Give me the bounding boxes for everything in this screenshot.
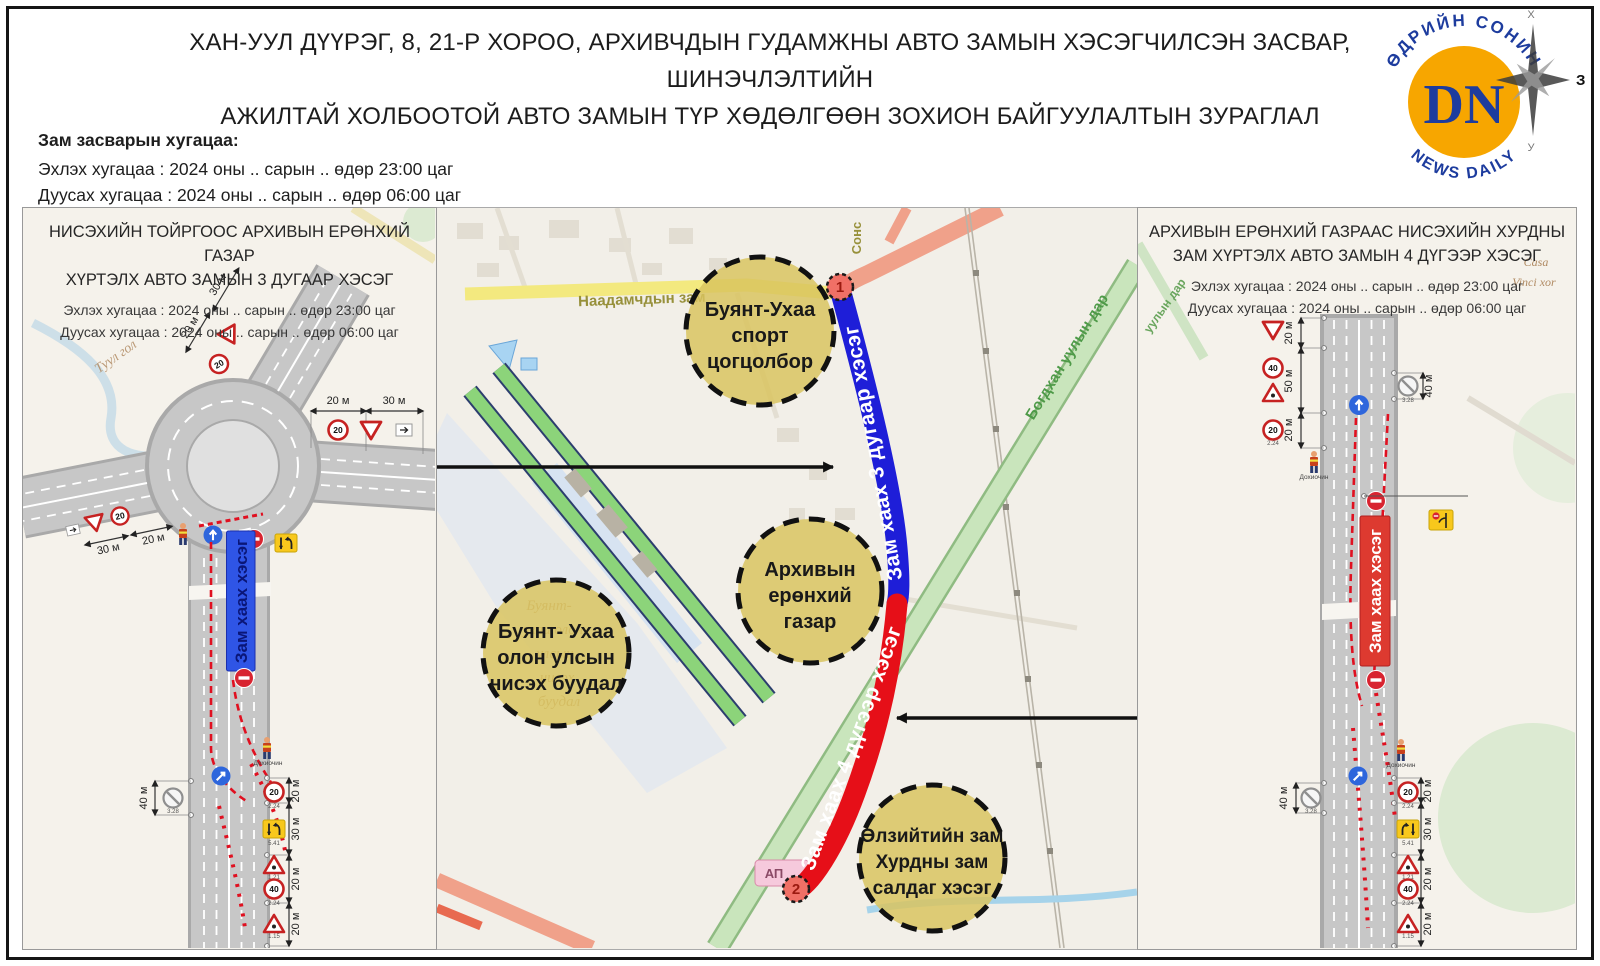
worker-icon [1397, 739, 1405, 761]
poi-sport-complex: Буянт-Ухаа спорт цогцолбор [686, 257, 834, 405]
svg-text:1: 1 [836, 279, 844, 296]
direction-plate-icon [66, 524, 81, 536]
right-panel-end: Дуусах хугацаа : 2024 оны .. сарын .. өд… [1138, 297, 1576, 319]
svg-text:Хурдны зам: Хурдны зам [876, 852, 989, 873]
svg-text:2: 2 [792, 881, 800, 898]
repair-end: Дуусах хугацаа : 2024 оны .. сарын .. өд… [38, 182, 461, 208]
svg-text:АП: АП [765, 866, 784, 881]
svg-text:20 м: 20 м [141, 531, 166, 547]
svg-text:50 м: 50 м [1283, 370, 1295, 393]
lane-closed-sign-icon [1429, 510, 1453, 530]
svg-text:20: 20 [1268, 425, 1278, 435]
roadworks-warning-icon [1398, 856, 1418, 873]
lane-shift-sign-icon [275, 534, 297, 552]
no-entry-sign-icon [1367, 671, 1386, 690]
svg-text:20 м: 20 м [290, 913, 302, 936]
poi-archive: Архивын ерөнхий газар [738, 519, 882, 663]
svg-text:20 м: 20 м [1422, 868, 1434, 891]
svg-text:20 м: 20 м [1422, 780, 1434, 803]
svg-text:20 м: 20 м [1283, 322, 1295, 345]
poi-junction: Өлзийтийн зам Хурдны зам салдаг хэсэг [859, 785, 1005, 931]
measure-left-bottom-40: 40 м 3.28 [1278, 781, 1326, 816]
left-panel-header: НИСЭХИЙН ТОЙРГООС АРХИВЫН ЕРӨНХИЙ ГАЗАР … [23, 220, 436, 343]
roundabout-island [187, 420, 279, 512]
page-title-line1: ХАН-УУЛ ДҮҮРЭГ, 8, 21-Р ХОРОО, АРХИВЧДЫН… [150, 24, 1390, 98]
no-stopping-sign-icon [1399, 377, 1418, 396]
compass-east-label: З [1576, 72, 1585, 89]
bg-green-area [1438, 723, 1575, 913]
right-panel-start: Эхлэх хугацаа : 2024 оны .. сарын .. өдө… [1138, 275, 1576, 297]
left-panel-end: Дуусах хугацаа : 2024 оны .. сарын .. өд… [23, 321, 436, 343]
svg-text:40: 40 [1403, 884, 1413, 894]
svg-text:олон улсын: олон улсын [497, 647, 615, 669]
no-entry-sign-icon [235, 669, 254, 688]
right-panel-title-line1: АРХИВЫН ЕРӨНХИЙ ГАЗРААС НИСЭХИЙН ХУРДНЫ [1138, 220, 1576, 244]
svg-text:30 м: 30 м [96, 541, 121, 557]
measure-left-column: 20 м 50 м 20 м 40 20 2.24 [1263, 316, 1326, 451]
compass-north-label: Х [1527, 9, 1535, 21]
repair-start: Эхлэх хугацаа : 2024 оны .. сарын .. өдө… [38, 156, 461, 182]
no-stopping-sign-icon [1302, 789, 1321, 808]
logo-monogram: DN [1424, 74, 1505, 136]
svg-text:2.24: 2.24 [268, 901, 280, 907]
svg-text:30 м: 30 м [290, 818, 302, 841]
road-narrows-warning-icon [1398, 915, 1418, 932]
svg-text:20 м: 20 м [290, 780, 302, 803]
svg-text:2.24: 2.24 [1402, 804, 1414, 810]
svg-text:5.41: 5.41 [268, 841, 280, 847]
repair-time-heading: Зам засварын хугацаа: [38, 127, 461, 153]
repair-time-block: Зам засварын хугацаа: Эхлэх хугацаа : 20… [38, 127, 461, 208]
svg-text:2.24: 2.24 [1267, 441, 1279, 447]
right-panel-section4: АРХИВЫН ЕРӨНХИЙ ГАЗРААС НИСЭХИЙН ХУРДНЫ … [1137, 207, 1577, 950]
svg-text:1.15: 1.15 [1402, 934, 1414, 940]
dn-logo-svg: DN ӨДРИЙН СОНИН NEWS DAILY Х У З [1380, 2, 1590, 202]
svg-text:20 м: 20 м [1283, 419, 1295, 442]
svg-text:20 м: 20 м [1422, 913, 1434, 936]
right-panel-title-line2: ЗАМ ХҮРТЭЛХ АВТО ЗАМЫН 4 ДҮГЭЭР ХЭСЭГ [1138, 244, 1576, 268]
right-panel-header: АРХИВЫН ЕРӨНХИЙ ГАЗРААС НИСЭХИЙН ХУРДНЫ … [1138, 220, 1576, 319]
center-map-svg: Наадамчдын зам Сонс Богдхан уулы [437, 208, 1137, 948]
oneway-sign-icon [204, 526, 223, 545]
bg-green-area [1513, 393, 1575, 503]
measure-right-40: 40 м 3.28 [1392, 371, 1435, 404]
svg-text:30 м: 30 м [1422, 818, 1434, 841]
svg-text:20: 20 [1403, 787, 1413, 797]
measure-left-40: 40 м 3.28 [138, 779, 193, 818]
sons-road-label: Сонс [849, 222, 864, 254]
svg-text:Өлзийтийн зам: Өлзийтийн зам [861, 826, 1004, 847]
svg-text:Буянт- Ухаа: Буянт- Ухаа [498, 621, 615, 643]
svg-text:20 м: 20 м [290, 868, 302, 891]
pink-road-stub [889, 208, 907, 242]
bogdkhan-road-label: Богдхан уулын дар [1022, 291, 1112, 423]
svg-text:30 м: 30 м [383, 395, 406, 407]
svg-text:20 м: 20 м [327, 395, 350, 407]
center-map: Наадамчдын зам Сонс Богдхан уулы [437, 207, 1137, 950]
roadworks-warning-icon [1263, 384, 1283, 401]
yield-sign-icon [1263, 322, 1283, 339]
svg-text:5.41: 5.41 [1402, 841, 1414, 847]
compass-south-label: У [1528, 142, 1536, 154]
yield-sign-icon [361, 422, 381, 439]
lane-shift-sign-icon [1397, 820, 1419, 838]
svg-text:40 м: 40 м [138, 787, 150, 810]
poi-airport: Буянт- Ухаа олон улсын нисэх буудал [483, 580, 629, 726]
svg-text:Буянт-Ухаа: Буянт-Ухаа [705, 299, 816, 321]
svg-text:Архивын: Архивын [764, 559, 855, 581]
svg-text:нисэх буудал: нисэх буудал [489, 673, 622, 695]
left-panel-title-line1: НИСЭХИЙН ТОЙРГООС АРХИВЫН ЕРӨНХИЙ ГАЗАР [23, 220, 436, 268]
svg-text:40 м: 40 м [1278, 787, 1290, 810]
page-title: ХАН-УУЛ ДҮҮРЭГ, 8, 21-Р ХОРОО, АРХИВЧДЫН… [150, 24, 1390, 135]
dn-logo: DN ӨДРИЙН СОНИН NEWS DAILY Х У З [1380, 2, 1590, 202]
lane-shift-sign-icon [263, 820, 285, 838]
keep-right-sign-icon [1349, 767, 1368, 786]
pond-shape [521, 358, 537, 370]
keep-right-sign-icon [212, 767, 231, 786]
closure-label-right: Зам хаах хэсэг [1366, 529, 1385, 653]
worker-icon [179, 523, 187, 545]
flagman-label: Дохиочин [254, 760, 283, 767]
svg-text:спорт: спорт [731, 325, 788, 347]
svg-text:ерөнхий: ерөнхий [768, 585, 851, 607]
marker-1: 1 [827, 274, 853, 300]
flagman-label: Дохиочин [1300, 474, 1329, 481]
highway-ramp [437, 908, 481, 926]
naadam-road-label: Наадамчдын зам [578, 289, 706, 310]
airport-area [437, 368, 769, 793]
svg-text:20: 20 [269, 787, 279, 797]
traffic-plan-poster: ХАН-УУЛ ДҮҮРЭГ, 8, 21-Р ХОРОО, АРХИВЧДЫН… [0, 0, 1600, 966]
svg-text:3.28: 3.28 [167, 809, 179, 815]
svg-text:2.24: 2.24 [268, 804, 280, 810]
no-entry-sign-icon [1367, 492, 1386, 511]
marker-2: 2 [783, 876, 809, 902]
no-stopping-sign-icon [164, 789, 183, 808]
svg-text:цогцолбор: цогцолбор [707, 351, 813, 373]
right-road-diagram: уулын дар Casa Vinci xor [1138, 208, 1575, 948]
left-panel-title-line2: ХҮРТЭЛХ АВТО ЗАМЫН 3 ДУГААР ХЭСЭГ [23, 268, 436, 292]
svg-text:3.28: 3.28 [1402, 398, 1414, 404]
svg-text:2.24: 2.24 [1402, 901, 1414, 907]
direction-plate-icon [396, 424, 412, 436]
svg-text:40: 40 [269, 884, 279, 894]
svg-text:салдаг хэсэг: салдаг хэсэг [873, 878, 992, 899]
svg-text:40 м: 40 м [1423, 375, 1435, 398]
svg-text:3.28: 3.28 [1305, 809, 1317, 815]
svg-text:1.15: 1.15 [268, 934, 280, 940]
flagman-label: Дохиочин [1387, 762, 1416, 769]
svg-text:газар: газар [784, 611, 837, 633]
oneway-sign-icon [1349, 395, 1369, 415]
left-panel-section3: НИСЭХИЙН ТОЙРГООС АРХИВЫН ЕРӨНХИЙ ГАЗАР … [22, 207, 437, 950]
worker-icon [1310, 451, 1318, 473]
svg-text:20: 20 [333, 425, 343, 435]
river-label: Туул гол [92, 337, 139, 376]
closure-label-left: Зам хаах хэсэг [232, 539, 251, 663]
left-panel-start: Эхлэх хугацаа : 2024 оны .. сарын .. өдө… [23, 299, 436, 321]
svg-text:40: 40 [1268, 363, 1278, 373]
